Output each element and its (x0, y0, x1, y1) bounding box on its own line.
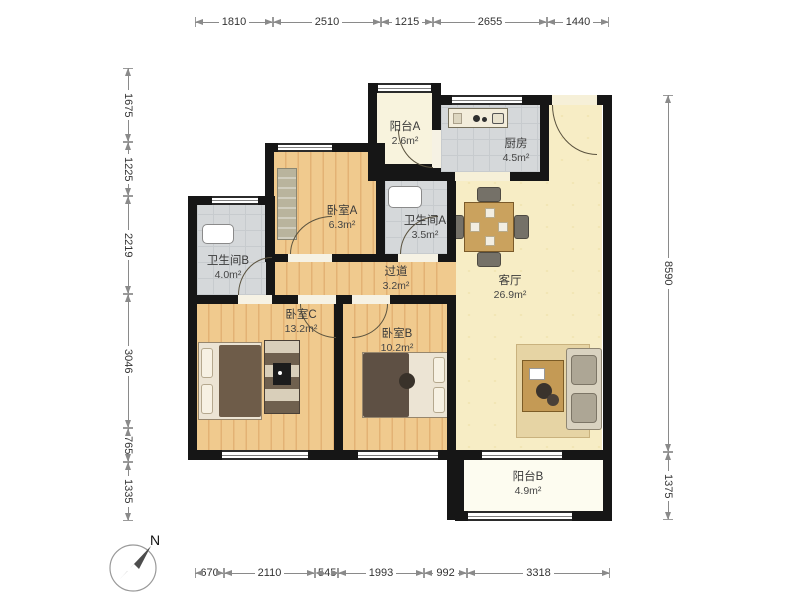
dim-line (422, 22, 433, 23)
dim-value: 1440 (563, 16, 593, 28)
dining-chair (477, 187, 501, 202)
dim-left-1: 1225 (121, 142, 135, 196)
dim-bottom-5: 3318 (467, 566, 610, 580)
wardrobe-bedroom-c (264, 340, 300, 414)
dim-line (467, 573, 523, 574)
room-area: 26.9m² (494, 288, 527, 302)
dining-chair (477, 252, 501, 267)
stove-burner-icon (473, 115, 480, 122)
label-bath-b: 卫生间B 4.0m² (207, 254, 249, 282)
dining-table (464, 202, 514, 252)
label-balcony-a: 阳台A 2.6m² (390, 120, 421, 148)
dim-line (128, 142, 129, 154)
coffee-table (522, 360, 564, 412)
room-area: 4.0m² (207, 268, 249, 282)
stove-burner-icon (482, 117, 487, 122)
tv-dot (278, 371, 282, 375)
room-area: 3.2m² (383, 280, 410, 294)
dim-left-5: 1335 (121, 462, 135, 521)
sliding-door-balcony-b (482, 450, 562, 460)
dim-value: 1993 (366, 567, 396, 579)
dim-left-4: 765 (121, 428, 135, 462)
dim-line (342, 22, 381, 23)
dim-value: 1335 (122, 476, 134, 506)
dim-line (668, 452, 669, 471)
dim-value: 2110 (255, 567, 285, 579)
sofa-cushion (571, 393, 597, 423)
label-bed-b: 卧室B 10.2m² (381, 327, 414, 355)
teapot-icon (547, 394, 559, 406)
opening-kitchen (455, 172, 510, 181)
pillow (201, 384, 213, 414)
dim-line (381, 22, 392, 23)
dim-bottom-0: 670 (195, 566, 224, 580)
label-bed-a: 卧室A 6.3m² (327, 204, 358, 232)
blanket (219, 345, 261, 417)
dim-value: 1375 (662, 471, 674, 501)
dim-line (284, 573, 315, 574)
dim-value: 3318 (523, 567, 553, 579)
dim-line (338, 573, 366, 574)
label-kitchen: 厨房 4.5m² (503, 137, 530, 165)
pillow (433, 387, 445, 413)
room-name: 卫生间B (207, 254, 249, 268)
tv-icon (273, 363, 291, 385)
dim-line (128, 68, 129, 90)
dim-right-0: 8590 (661, 95, 675, 452)
dim-line (668, 289, 669, 452)
window-bath-b (212, 196, 258, 205)
sofa-cushion (571, 355, 597, 385)
dim-line (554, 573, 610, 574)
dining-chair (514, 215, 529, 239)
room-name: 卧室A (327, 204, 358, 218)
dim-bottom-4: 992 (424, 566, 467, 580)
room-area: 4.9m² (513, 484, 544, 498)
dim-value: 992 (433, 567, 457, 579)
door-opening-bed-b (352, 295, 390, 304)
place-setting (470, 222, 480, 232)
room-name: 卫生间A (404, 214, 446, 228)
dim-line (249, 22, 273, 23)
dim-line (668, 95, 669, 258)
dim-top-2: 1215 (381, 15, 433, 29)
dim-line (593, 22, 609, 23)
label-bath-a: 卫生间A 3.5m² (404, 214, 446, 242)
dim-value: 2219 (122, 230, 134, 260)
place-setting (498, 222, 508, 232)
floorplan-canvas: 阳台A 2.6m² 厨房 4.5m² 卫生间A 3.5m² 卧室A 6.3m² … (0, 0, 800, 600)
round-cushion (399, 373, 415, 389)
dim-line (458, 573, 467, 574)
dim-line (128, 462, 129, 476)
wall (447, 172, 456, 262)
wall (540, 95, 549, 181)
dim-line (128, 120, 129, 142)
wall (188, 196, 197, 460)
dim-line (505, 22, 547, 23)
dim-line (128, 196, 129, 230)
counter-board (453, 113, 462, 124)
north-compass: N (106, 532, 172, 596)
dim-line (195, 573, 197, 574)
room-name: 过道 (383, 266, 410, 280)
label-corridor: 过道 3.2m² (383, 266, 410, 293)
room-area: 3.5m² (404, 228, 446, 242)
room-name: 客厅 (494, 274, 527, 288)
window-balcony-a (378, 83, 431, 93)
dim-value: 8590 (662, 258, 674, 288)
dim-value: 1810 (219, 16, 249, 28)
room-name: 阳台A (390, 120, 421, 134)
floor-corridor (275, 262, 447, 295)
dim-line (128, 428, 129, 433)
floor-corridor-throat (447, 262, 456, 295)
dim-right-1: 1375 (661, 452, 675, 520)
window-balcony-b (468, 511, 572, 521)
kitchen-counter (448, 108, 508, 128)
room-name: 卧室C (285, 308, 318, 322)
dim-top-1: 2510 (273, 15, 381, 29)
wardrobe-bed-a (277, 168, 297, 240)
dim-value: 1675 (122, 90, 134, 120)
dim-value: 3046 (122, 346, 134, 376)
room-area: 10.2m² (381, 341, 414, 355)
wall (603, 95, 612, 520)
bed-bedroom-b (362, 352, 448, 418)
label-bed-c: 卧室C 13.2m² (285, 308, 318, 336)
washbasin-bath-a (388, 186, 422, 208)
door-opening-bed-c (298, 295, 336, 304)
dim-line (128, 260, 129, 294)
window-bed-b-bottom (358, 450, 438, 460)
sink-icon (492, 113, 504, 124)
compass-north-label: N (150, 532, 160, 548)
door-opening-balcony-a (432, 130, 441, 168)
dim-line (224, 573, 255, 574)
dim-value: 1215 (392, 16, 422, 28)
table-card (529, 368, 545, 380)
pillow (433, 357, 445, 383)
room-name: 卧室B (381, 327, 414, 341)
room-area: 13.2m² (285, 322, 318, 336)
dim-line (128, 184, 129, 196)
dim-left-3: 3046 (121, 294, 135, 428)
door-opening-bed-a (288, 254, 332, 262)
dim-line (128, 294, 129, 346)
room-name: 厨房 (503, 137, 530, 151)
washbasin-bath-b (202, 224, 234, 244)
wall (447, 450, 464, 520)
dim-line (424, 573, 433, 574)
place-setting (485, 208, 495, 218)
pillow (201, 348, 213, 378)
place-setting (485, 236, 495, 246)
bed-bedroom-c (198, 342, 262, 420)
dim-line (668, 501, 669, 520)
dim-line (396, 573, 424, 574)
dim-line (128, 507, 129, 521)
sofa (566, 348, 602, 430)
door-opening-bath-b (238, 295, 272, 304)
dim-value: 1225 (122, 154, 134, 184)
dim-left-2: 2219 (121, 196, 135, 294)
dim-line (433, 22, 475, 23)
dim-value: 2655 (475, 16, 505, 28)
dim-value: 2510 (312, 16, 342, 28)
room-area: 6.3m² (327, 218, 358, 232)
room-area: 4.5m² (503, 151, 530, 165)
window-kitchen (452, 95, 522, 105)
dim-bottom-1: 2110 (224, 566, 315, 580)
door-opening-bath-a (398, 254, 438, 262)
window-bed-c-bottom (222, 450, 308, 460)
wall (376, 143, 385, 262)
label-balcony-b: 阳台B 4.9m² (513, 470, 544, 498)
dim-bottom-3: 1993 (338, 566, 424, 580)
compass-icon (106, 532, 172, 596)
room-name: 阳台B (513, 470, 544, 484)
wall (447, 295, 456, 460)
dim-line (128, 376, 129, 428)
dim-top-4: 1440 (547, 15, 609, 29)
dim-line (195, 22, 219, 23)
dim-bottom-2: 545 (315, 566, 338, 580)
door-opening-entry (552, 95, 597, 105)
dim-line (547, 22, 563, 23)
room-area: 2.6m² (390, 134, 421, 148)
dim-top-3: 2655 (433, 15, 547, 29)
dim-line (273, 22, 312, 23)
window-bed-a-top (278, 143, 332, 152)
dim-left-0: 1675 (121, 68, 135, 142)
dim-top-0: 1810 (195, 15, 273, 29)
label-living: 客厅 26.9m² (494, 274, 527, 302)
